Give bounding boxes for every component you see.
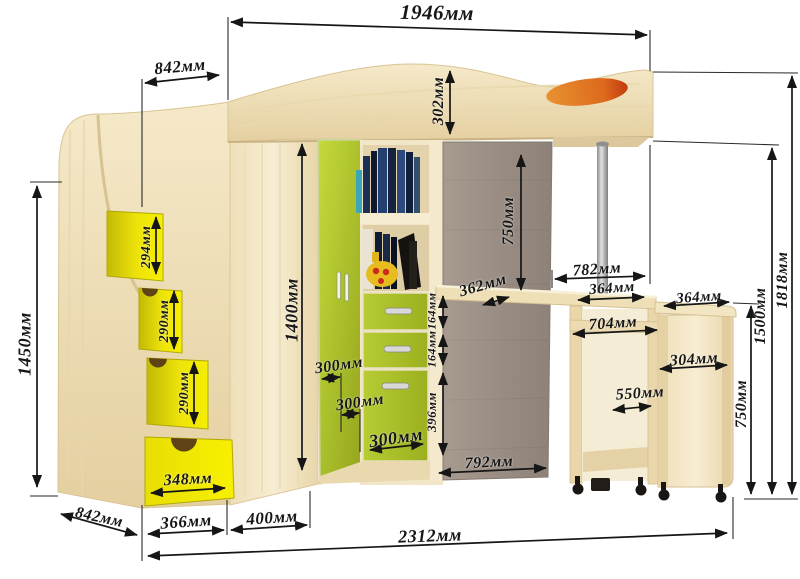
dim-label-290-b: 290мм (177, 372, 193, 415)
wardrobe-door (318, 140, 362, 484)
dim-label-1818: 1818мм (774, 252, 792, 309)
dim-label-1400: 1400мм (282, 278, 303, 342)
dim-label-366: 366мм (160, 510, 213, 534)
dim-label-364-b: 364мм (676, 288, 723, 308)
furniture-illustration (0, 0, 800, 579)
dim-label-782: 782мм (572, 259, 622, 280)
dim-label-2312: 2312мм (398, 524, 462, 547)
dim-label-750-under: 750мм (500, 197, 518, 245)
dim-label-1500: 1500мм (752, 288, 770, 345)
dim-label-704: 704мм (588, 313, 638, 334)
dim-label-792: 792мм (464, 453, 513, 474)
books-top-shelf (356, 148, 420, 213)
dim-label-304: 304мм (669, 349, 719, 370)
dim-label-348: 348мм (163, 470, 212, 491)
dim-label-1946: 1946мм (400, 0, 474, 26)
dim-label-396: 396мм (424, 392, 440, 432)
under-bed-back-panel (443, 142, 552, 480)
dim-label-364-a: 364мм (589, 279, 636, 299)
door-handle (345, 274, 349, 301)
books-second-shelf (361, 229, 421, 290)
furniture-dimension-diagram: 1946мм 842мм 302мм 1450мм 294мм 290мм 29… (0, 0, 800, 579)
wardrobe-side-panel (230, 139, 318, 505)
dim-label-290-a: 290мм (157, 300, 173, 343)
dim-label-550: 550мм (615, 383, 665, 404)
pedestal (655, 302, 736, 487)
dim-label-302: 302мм (430, 77, 448, 125)
dim-label-750-right: 750мм (733, 380, 751, 428)
dim-label-164-b: 164мм (425, 331, 440, 368)
dim-label-164-a: 164мм (425, 293, 440, 330)
dim-label-400: 400мм (246, 506, 299, 530)
dim-label-294: 294мм (139, 226, 155, 269)
dim-label-1450: 1450мм (15, 312, 36, 376)
door-handle (337, 272, 341, 299)
